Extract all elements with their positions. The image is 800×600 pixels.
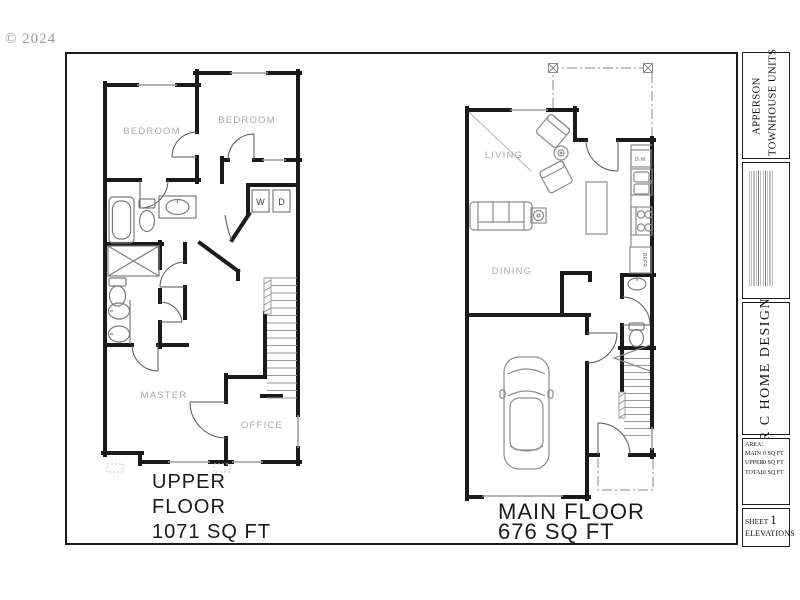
area-row-value: 0 SQ FT (763, 469, 784, 478)
area-row-value: 0 SQ FT (763, 450, 784, 459)
title-block-project: APPERSON TOWNHOUSE UNITS (742, 52, 790, 159)
round-side-table (554, 146, 568, 160)
dining-label: DINING (492, 266, 532, 277)
bedroom-left-label: BEDROOM (123, 126, 181, 137)
floor-plan-drawing: BEDROOM BEDROOM MASTER OFFICE W D UPPER … (0, 0, 800, 600)
car (500, 357, 553, 469)
toilet-bowl (630, 330, 644, 347)
sofa (470, 202, 532, 230)
porch-outline (598, 457, 653, 490)
armchair (535, 113, 570, 148)
fine-print-block (749, 171, 773, 286)
toilet-tank (139, 199, 155, 208)
title-block-area: AREA: MAIN 0 SQ FT UPPER 0 SQ FT TOTAL 0… (742, 438, 790, 505)
main-stairs (614, 345, 650, 436)
sheet-name: ELEVATIONS (745, 529, 787, 538)
bedroom-right-label: BEDROOM (218, 115, 276, 126)
project-name-line2: TOWNHOUSE UNITS (766, 56, 782, 156)
powder-room-fixtures (628, 278, 646, 347)
upper-floor-plan: BEDROOM BEDROOM MASTER OFFICE W D UPPER … (103, 71, 300, 543)
footing-hatch (107, 464, 123, 472)
upper-bath-fixtures (108, 190, 290, 344)
title-block-sheet: SHEET 1 ELEVATIONS (742, 508, 790, 547)
washer-label: W (256, 197, 265, 207)
range (631, 207, 652, 235)
deck-posts (549, 64, 653, 73)
area-row-label: UPPER (745, 459, 763, 468)
master-label: MASTER (141, 390, 188, 401)
living-label: LIVING (485, 150, 523, 161)
upper-stairs (264, 278, 297, 398)
title-block-notes (742, 162, 790, 299)
title-block-company: R C HOME DESIGN (742, 302, 790, 435)
main-walls (467, 108, 654, 499)
area-row-total: TOTAL 0 SQ FT (745, 469, 787, 478)
company-name: R C HOME DESIGN (758, 296, 774, 440)
area-row-main: MAIN 0 SQ FT (745, 450, 787, 459)
toilet-bowl (140, 211, 155, 232)
armchair (539, 160, 573, 193)
main-floor-plan: LIVING DINING D.W. REFR MAIN FLOOR 676 S… (467, 64, 654, 545)
stair-treads (267, 278, 297, 398)
refrigerator-label: REFR (641, 253, 647, 268)
upper-caption-line2: FLOOR (152, 496, 226, 518)
deck-outline (553, 68, 652, 136)
dryer-label: D (278, 197, 285, 207)
kitchen-sink (631, 169, 652, 195)
sheet-label: SHEET (745, 517, 768, 526)
office-label: OFFICE (241, 420, 283, 431)
project-name-line1: APPERSON (750, 56, 766, 156)
area-heading: AREA: (745, 442, 787, 448)
toilet-tank (109, 278, 126, 286)
main-windows (482, 110, 652, 496)
main-caption-line2: 676 SQ FT (498, 519, 615, 544)
upper-caption-line3: 1071 SQ FT (152, 521, 271, 543)
stair-cut-hatch (619, 392, 625, 418)
drawing-sheet: © 2024 (0, 0, 800, 600)
area-row-value: 0 SQ FT (763, 459, 784, 468)
living-furniture (469, 112, 573, 230)
area-row-upper: UPPER 0 SQ FT (745, 459, 787, 468)
area-row-label: MAIN (745, 450, 763, 459)
kitchen-island (586, 182, 607, 234)
square-side-table (531, 208, 546, 223)
ceiling-break-line (469, 112, 531, 171)
area-row-label: TOTAL (745, 469, 763, 478)
upper-caption-line1: UPPER (152, 471, 226, 493)
dishwasher-label: D.W. (635, 157, 647, 163)
sheet-number: 1 (770, 512, 777, 527)
